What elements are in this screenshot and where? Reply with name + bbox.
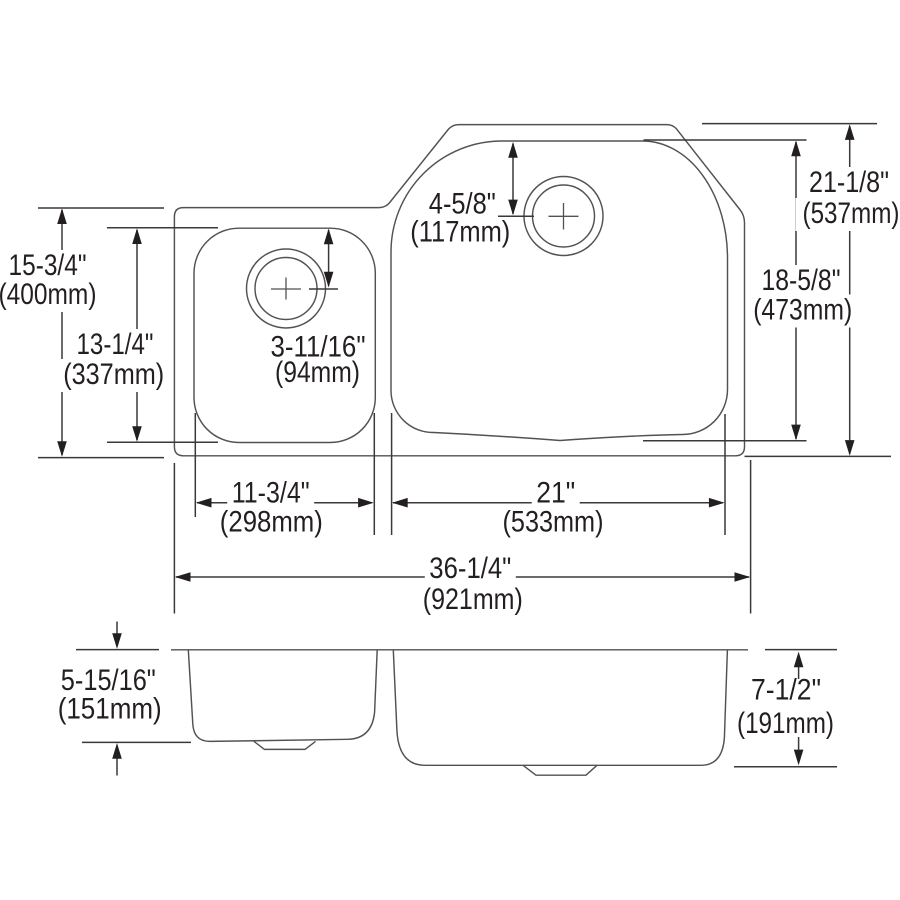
svg-text:(298mm): (298mm) <box>220 506 323 539</box>
svg-text:18-5/8": 18-5/8" <box>762 264 841 297</box>
svg-text:(94mm): (94mm) <box>275 356 360 389</box>
svg-text:(117mm): (117mm) <box>410 215 510 248</box>
svg-text:(337mm): (337mm) <box>63 358 164 391</box>
svg-text:21": 21" <box>536 476 575 509</box>
svg-text:(921mm): (921mm) <box>423 583 523 616</box>
svg-text:21-1/8": 21-1/8" <box>809 166 889 199</box>
svg-text:(473mm): (473mm) <box>753 294 852 327</box>
svg-text:13-1/4": 13-1/4" <box>77 328 154 361</box>
svg-text:(533mm): (533mm) <box>503 506 604 539</box>
svg-text:(151mm): (151mm) <box>58 693 162 726</box>
svg-text:(537mm): (537mm) <box>803 197 900 230</box>
svg-text:(400mm): (400mm) <box>0 278 97 311</box>
svg-text:(191mm): (191mm) <box>737 707 834 740</box>
svg-text:7-1/2": 7-1/2" <box>751 674 821 707</box>
svg-text:36-1/4": 36-1/4" <box>429 552 511 585</box>
